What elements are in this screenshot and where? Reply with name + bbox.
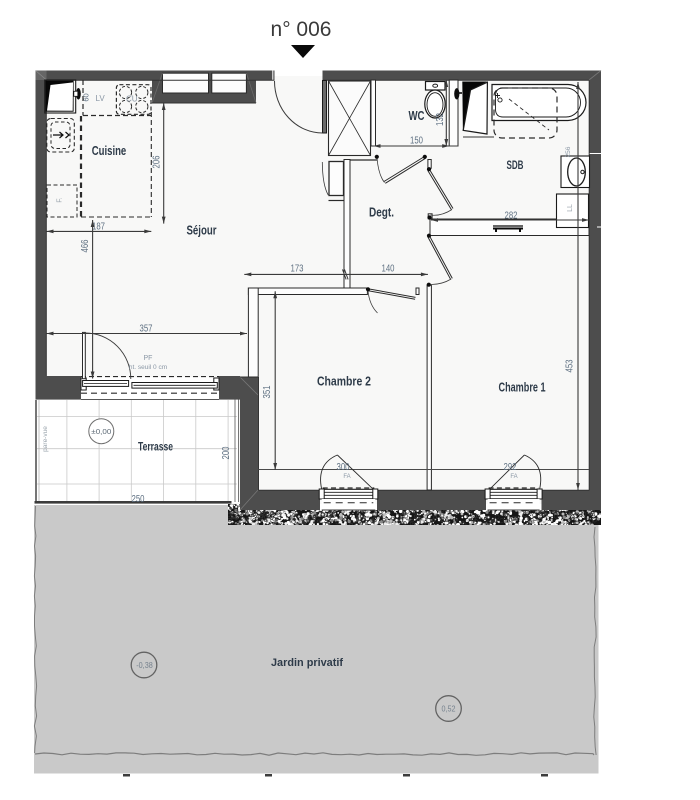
svg-text:pare-vue: pare-vue — [42, 426, 49, 452]
svg-text:±0,00: ±0,00 — [91, 427, 111, 436]
svg-text:132: 132 — [435, 113, 446, 126]
svg-text:300: 300 — [337, 462, 350, 473]
svg-text:282: 282 — [505, 210, 518, 221]
svg-text:Jardin privatif: Jardin privatif — [271, 657, 343, 669]
svg-text:Chambre 1: Chambre 1 — [499, 381, 546, 395]
svg-text:256: 256 — [565, 146, 572, 157]
svg-text:FA: FA — [343, 474, 350, 480]
svg-text:292: 292 — [504, 462, 517, 473]
svg-text:Séjour: Séjour — [187, 223, 217, 238]
svg-text:LV: LV — [96, 94, 106, 103]
svg-text:357: 357 — [140, 324, 153, 335]
svg-text:173: 173 — [291, 264, 304, 275]
svg-text:F.: F. — [57, 197, 64, 203]
svg-text:WC: WC — [409, 108, 425, 123]
svg-text:206: 206 — [152, 155, 163, 168]
svg-text:CU: CU — [126, 95, 138, 104]
svg-text:Terrasse: Terrasse — [138, 439, 173, 453]
svg-text:PF: PF — [144, 355, 153, 362]
svg-text:453: 453 — [565, 359, 576, 372]
svg-text:Degt.: Degt. — [369, 206, 394, 220]
svg-text:ht. seuil 0 cm: ht. seuil 0 cm — [129, 364, 167, 371]
svg-text:200: 200 — [221, 446, 232, 459]
svg-text:Chambre 2: Chambre 2 — [317, 375, 371, 389]
svg-text:n° 006: n° 006 — [271, 18, 332, 41]
svg-text:0,52: 0,52 — [442, 705, 456, 714]
svg-text:60: 60 — [82, 93, 91, 101]
svg-text:-0,38: -0,38 — [136, 661, 153, 670]
svg-text:SDB: SDB — [507, 158, 524, 172]
svg-text:250: 250 — [132, 494, 145, 505]
svg-text:LL: LL — [567, 204, 574, 212]
svg-text:150: 150 — [410, 136, 423, 147]
svg-text:140: 140 — [382, 264, 395, 275]
svg-text:466: 466 — [80, 239, 91, 252]
svg-text:351: 351 — [262, 386, 273, 399]
svg-text:FA: FA — [510, 474, 517, 480]
svg-text:Cuisine: Cuisine — [92, 143, 127, 158]
